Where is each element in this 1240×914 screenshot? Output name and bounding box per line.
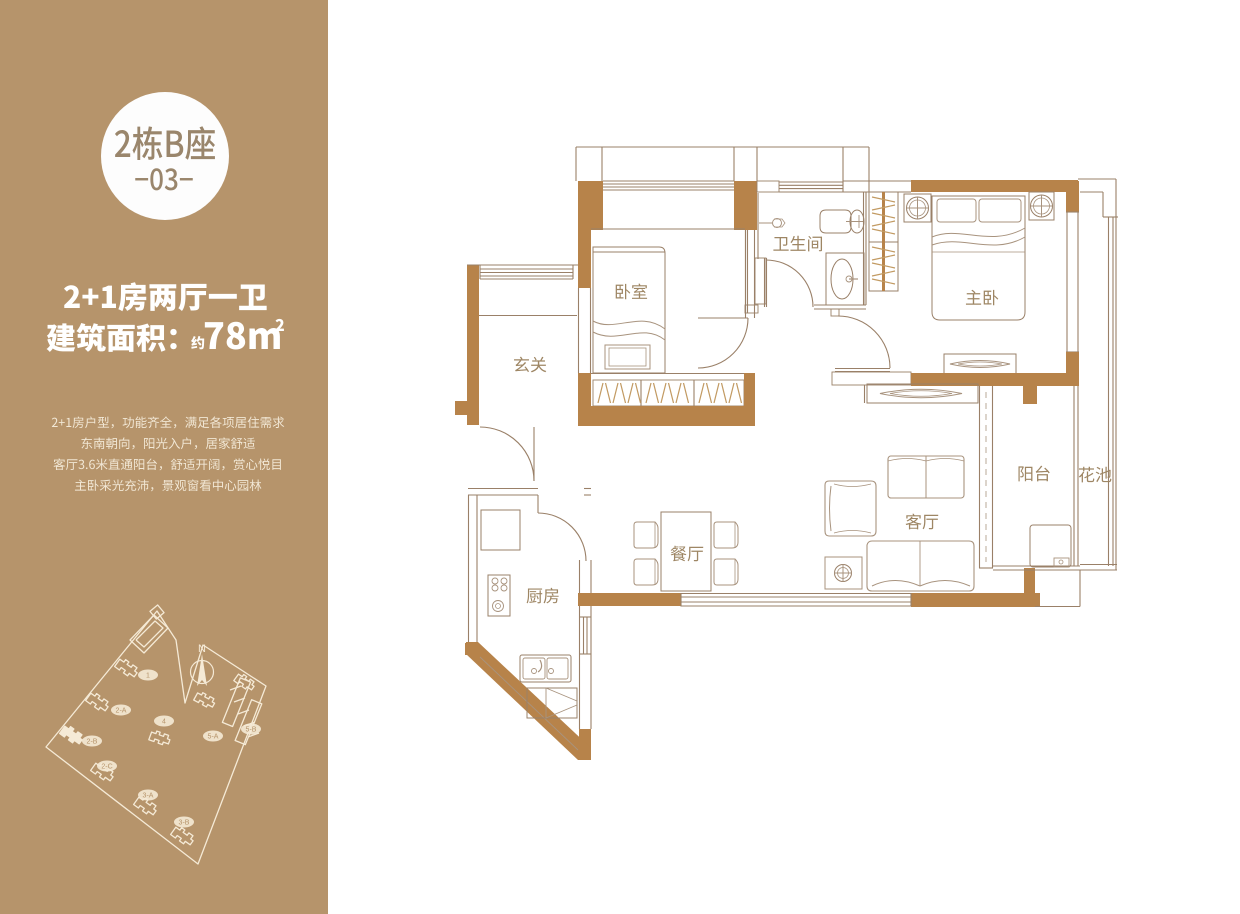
- svg-text:3-B: 3-B: [179, 820, 190, 827]
- svg-text:2-A: 2-A: [116, 708, 127, 715]
- svg-text:4: 4: [162, 719, 166, 726]
- svg-text:2-B: 2-B: [87, 739, 98, 746]
- svg-text:2-C: 2-C: [101, 764, 112, 771]
- svg-text:5-B: 5-B: [246, 727, 257, 734]
- svg-text:5-A: 5-A: [208, 734, 219, 741]
- svg-text:N: N: [198, 643, 206, 655]
- svg-text:1: 1: [146, 673, 150, 680]
- svg-text:3-A: 3-A: [143, 793, 154, 800]
